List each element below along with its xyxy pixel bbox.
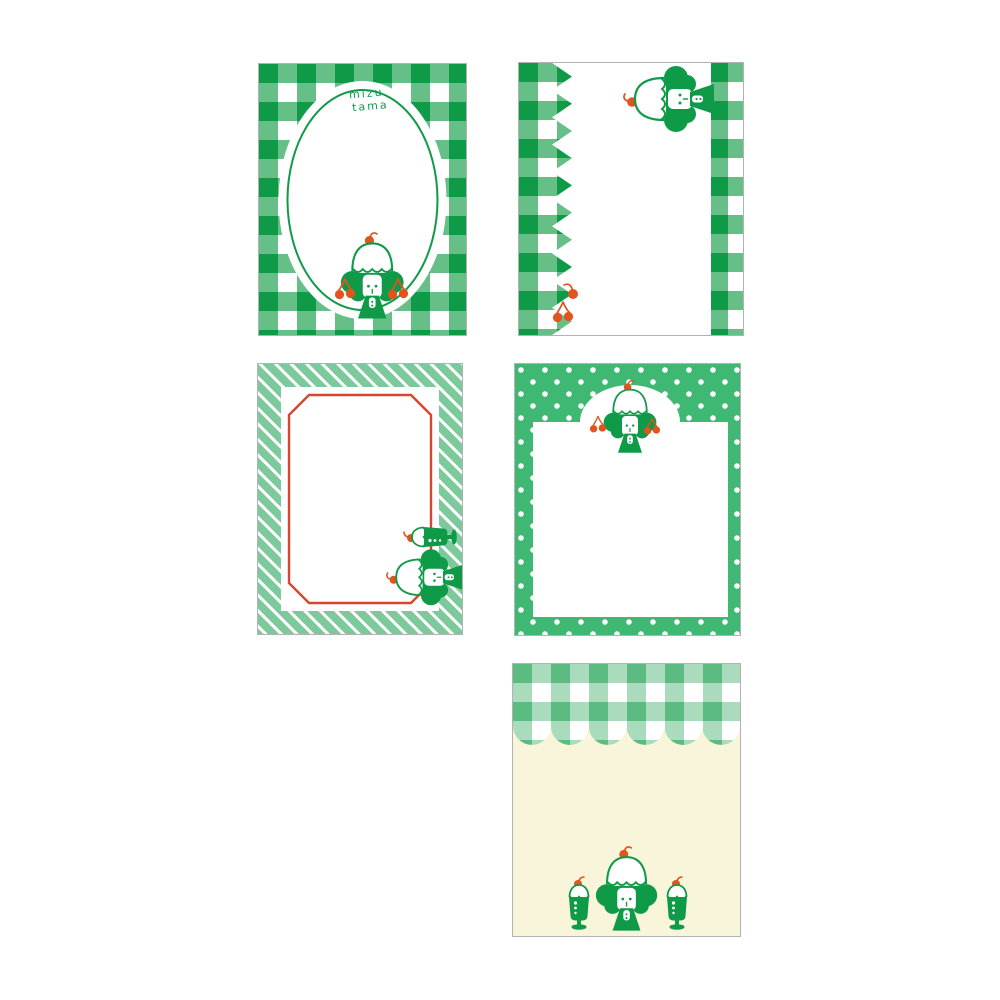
- right-gingham-band: [711, 63, 743, 335]
- product-image-memo-sheets: mizu tama: [0, 0, 1000, 1000]
- memo-sheet-gingham-awning: [513, 664, 740, 936]
- memo-sheet-stripes-red-frame: [258, 364, 462, 634]
- memo-sheet-gingham-zigzag: [519, 63, 743, 335]
- awning-art: [513, 664, 740, 936]
- stripes-art: [258, 364, 462, 634]
- gingham-oval-art: mizu tama: [259, 64, 466, 335]
- memo-sheet-gingham-oval: mizu tama: [259, 64, 466, 335]
- polka-art: [515, 364, 740, 635]
- memo-sheet-polka-arch: [515, 364, 740, 635]
- gingham-zigzag-art: [519, 63, 743, 335]
